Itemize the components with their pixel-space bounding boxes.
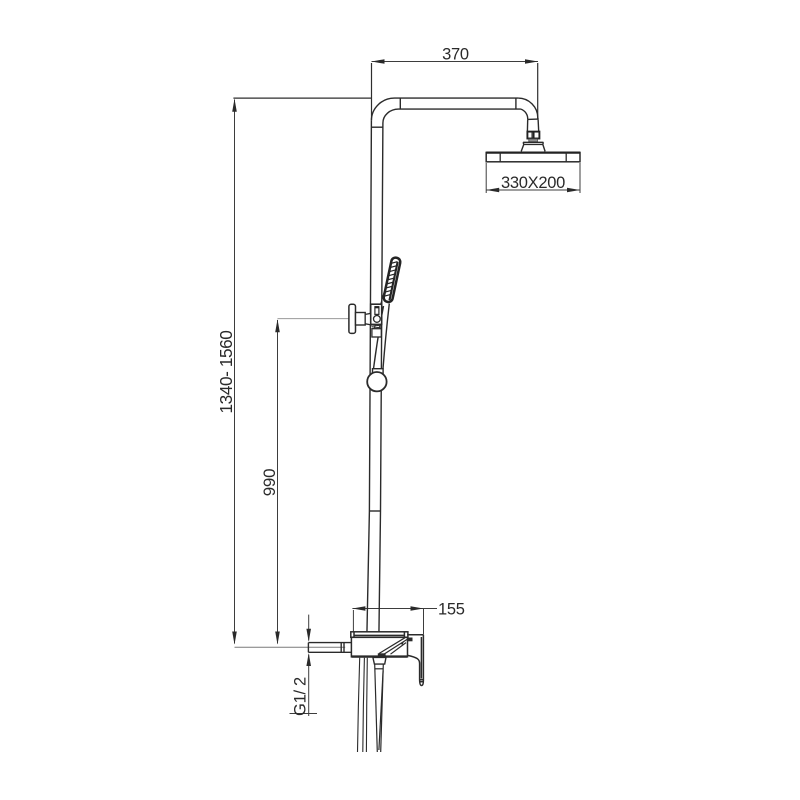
svg-text:1340- 1560: 1340- 1560	[216, 331, 236, 414]
svg-text:G1/ 2: G1/ 2	[292, 677, 310, 716]
svg-text:370: 370	[442, 46, 469, 64]
svg-text:990: 990	[260, 469, 279, 496]
svg-text:155: 155	[438, 601, 465, 619]
svg-text:330X200: 330X200	[501, 174, 565, 192]
